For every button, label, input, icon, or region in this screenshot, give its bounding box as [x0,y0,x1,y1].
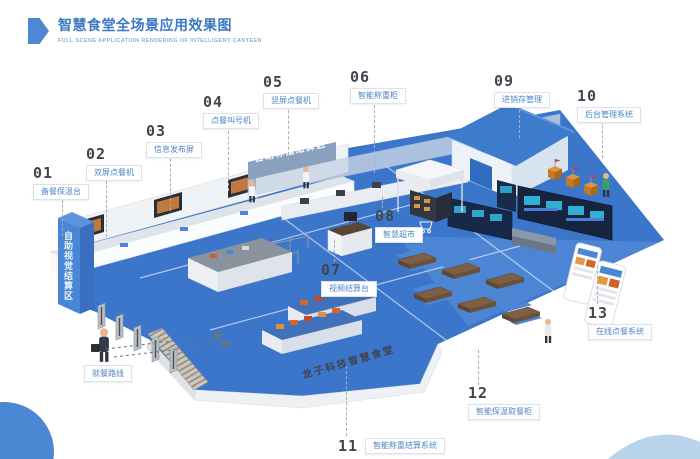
poster: 智慧食堂全场景应用效果图 FULL SCENE APPLICATION REND… [0,0,700,459]
callout-08: 08 智慧超市 [375,209,423,243]
brand-arrow-icon [28,18,49,44]
route-label-box: 就餐路线 [84,365,132,382]
callout-label: 在线点餐系统 [588,324,652,340]
customer-figure [545,319,552,343]
callout-09: 09 进销存管理 [494,74,550,108]
businessman-figure [91,328,109,362]
callout-number: 05 [263,75,283,90]
callout-number: 10 [577,89,597,104]
leader-line-07 [334,240,335,262]
callout-06: 06 智能称重柜 [350,70,406,104]
callout-number: 09 [494,74,514,89]
callout-05: 05 竖屏点餐机 [263,75,319,109]
callout-number: 07 [321,263,341,278]
callout-label: 备餐保温台 [33,184,89,200]
callout-number: 03 [146,124,166,139]
header: 智慧食堂全场景应用效果图 FULL SCENE APPLICATION REND… [28,15,262,44]
callout-number: 13 [588,306,608,321]
leader-line-04 [228,121,229,191]
leader-line-01 [62,200,63,236]
leader-line-03 [170,149,171,211]
callout-12: 12 智能保温取餐柜 [468,386,540,420]
callout-label: 点餐叫号机 [203,113,259,129]
callout-02: 02 双屏点餐机 [86,147,142,181]
callout-number: 11 [338,439,358,454]
page-subtitle: FULL SCENE APPLICATION RENDERING OF INTE… [58,38,262,44]
callout-label: 双屏点餐机 [86,165,142,181]
callout-10: 10 后台管理系统 [577,89,641,123]
leader-line-06 [374,95,375,173]
callout-label: 视频结算台 [321,281,377,297]
callout-number: 04 [203,95,223,110]
route-label: 就餐路线 [84,363,132,381]
callout-number: 12 [468,386,488,401]
callout-07: 07 视频结算台 [321,263,377,297]
leader-line-13 [597,266,598,304]
corner-decoration-left [0,402,54,459]
visual-area-banner: 自助视觉结算区 [62,231,75,301]
callout-label: 智能称重柜 [350,88,406,104]
leader-line-11 [346,366,347,436]
callout-label: 智慧超市 [375,227,423,243]
callout-label: 信息发布屏 [146,142,202,158]
callout-label: 智能称重结算系统 [365,438,445,454]
callout-04: 04 点餐叫号机 [203,95,259,129]
callout-number: 06 [350,70,370,85]
page-title: 智慧食堂全场景应用效果图 [58,15,262,35]
corner-decoration-right [608,435,700,459]
callout-13: 13 在线点餐系统 [588,306,652,340]
callout-label: 后台管理系统 [577,107,641,123]
callout-label: 竖屏点餐机 [263,93,319,109]
callout-number: 08 [375,209,395,224]
callout-label: 进销存管理 [494,92,550,108]
leader-line-05 [288,100,289,160]
callout-number: 01 [33,166,53,181]
callout-number: 02 [86,147,106,162]
callout-03: 03 信息发布屏 [146,124,202,158]
callout-01: 01 备餐保温台 [33,166,89,200]
callout-11: 11 智能称重结算系统 [338,438,445,454]
callout-label: 智能保温取餐柜 [468,404,540,420]
leader-line-12 [478,350,479,385]
